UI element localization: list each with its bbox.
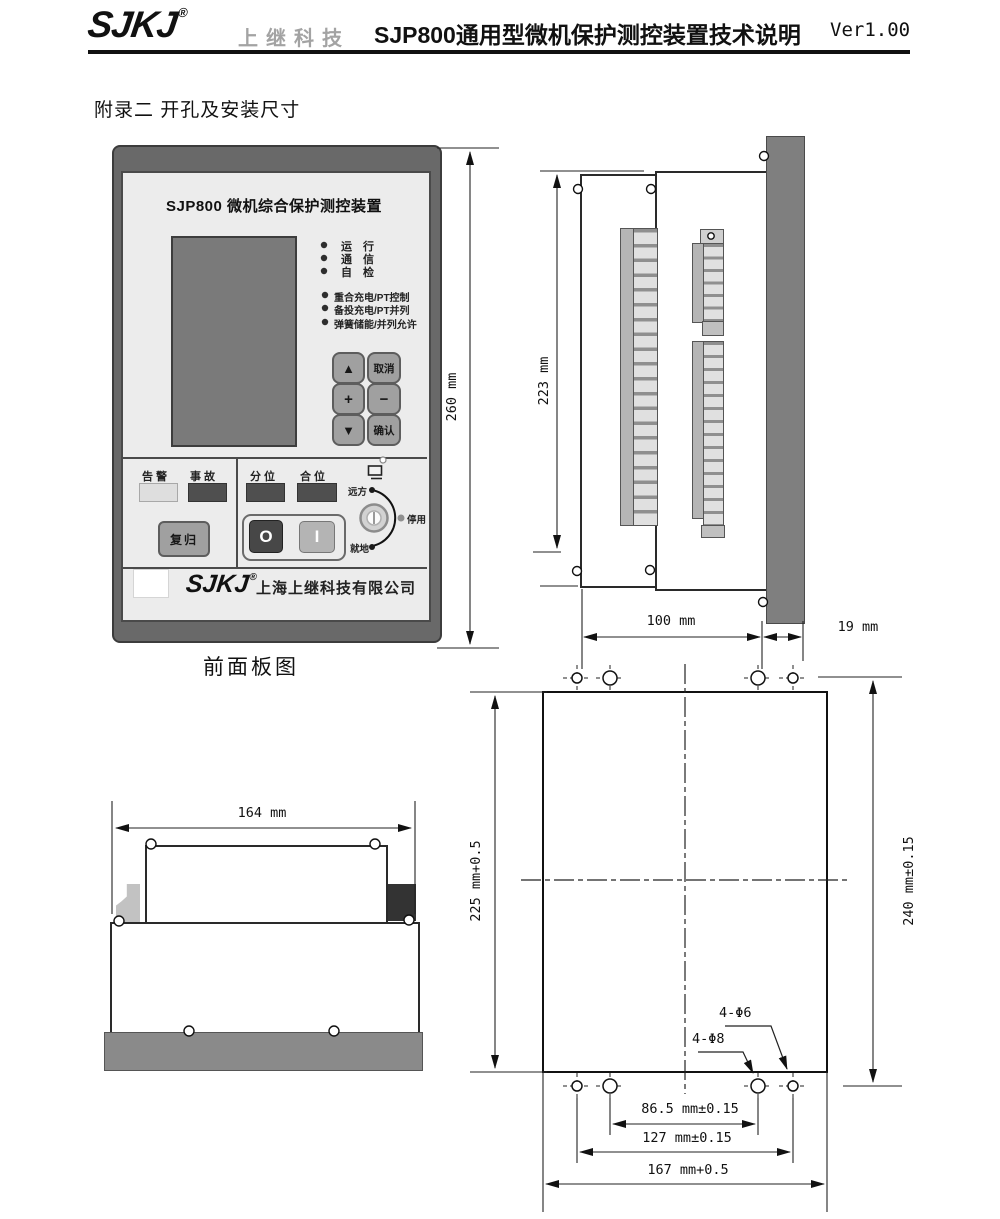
top-view-right-connector [388,884,416,921]
page-title: SJP800通用型微机保护测控装置技术说明 [374,16,801,50]
terminal-upper-cells [703,243,724,323]
key-confirm-button: 确认 [367,414,401,446]
status-led-check-label: 自 检 [341,264,374,280]
version-label: Ver1.00 [830,19,910,41]
terminal-strip-cells [633,228,658,526]
reset-button: 复归 [158,521,210,557]
dim-side-height: 223 mm [536,321,552,441]
section-title: 附录二 开孔及安装尺寸 [94,95,300,122]
key-down-button: ▼ [332,414,365,446]
mounting-hole [788,673,798,683]
terminal-connector-box [702,321,724,336]
registered-mark: ® [177,5,188,20]
dim-depth: 100 mm [591,613,751,629]
switch-off-button: O [249,520,283,553]
key-up-button: ▲ [332,352,365,384]
mounting-hole [603,671,617,685]
hole-diameter-6-label: 4-Φ6 [719,1005,752,1021]
panel-divider-vertical [236,457,238,569]
key-cancel-button: 取消 [367,352,401,384]
mounting-hole [751,1079,765,1093]
mounting-hole [572,1081,582,1091]
panel-divider-horizontal [121,457,427,459]
front-footer-logo-text: SJKJ [184,570,250,598]
mounting-holes [563,665,807,1099]
mounting-hole [788,1081,798,1091]
alarm-label: 告警 [142,468,170,484]
fault-indicator [188,483,227,502]
top-view-rear-case [145,845,388,927]
side-mounting-panel [766,136,805,624]
open-position-label: 分位 [250,468,278,484]
terminal-lower-cells [703,341,724,527]
terminal-lower-foot [701,525,725,538]
key-plus-button: + [332,383,365,415]
mounting-hole [572,673,582,683]
device-title: SJP800 微机综合保护测控装置 [121,195,427,216]
dim-top-width: 164 mm [182,805,342,821]
manual-page: SJKJ® 上继科技 SJP800通用型微机保护测控装置技术说明 Ver1.00… [0,0,1000,1219]
mounting-hole [603,1079,617,1093]
front-footer-reg: ® [249,572,258,583]
key-minus-button: − [367,383,401,415]
knob-disable-label: 停用 [407,512,426,526]
dim-holes-inner: 86.5 mm±0.15 [610,1101,770,1117]
hole-diameter-8-label: 4-Φ8 [692,1031,725,1047]
company-logo: SJKJ® [85,4,188,46]
closed-position-label: 合位 [300,468,328,484]
header-rule [88,50,910,54]
front-footer-logo: SJKJ® [184,570,257,599]
dim-holes-outer: 127 mm±0.15 [607,1130,767,1146]
dim-cutout-width: 167 mm+0.5 [608,1162,768,1178]
top-view-panel-bar [104,1032,423,1071]
mounting-hole [751,671,765,685]
knob-local-label: 就地 [329,541,369,555]
cutout-rect [543,692,827,1072]
dim-holes-vertical-lines [818,677,902,1086]
header-brand: 上继科技 [238,22,350,51]
alarm-indicator [139,483,178,502]
top-view-left-connector [116,884,140,923]
lcd-screen [171,236,297,447]
open-indicator [246,483,285,502]
knob-remote-label: 远方 [327,484,367,498]
dim-cutout-height: 225 mm+0.5 [468,821,484,941]
top-view-bezel [110,922,420,1037]
logo-text: SJKJ [85,4,179,45]
dim-front-height: 260 mm [444,337,460,457]
dim-panel-thickness: 19 mm [778,619,938,635]
fault-label: 事故 [190,468,218,484]
dim-holes-vertical: 240 mm±0.15 [901,821,917,941]
caption-front-panel: 前面板图 [203,651,299,681]
func-led-3-label: 弹簧储能/并列允许 [334,316,417,331]
cutout-centerlines [521,664,850,1094]
front-label-square [133,569,169,598]
func-led-2-label: 备投充电/PT并列 [334,302,410,317]
front-footer-company: 上海上继科技有限公司 [256,577,416,598]
